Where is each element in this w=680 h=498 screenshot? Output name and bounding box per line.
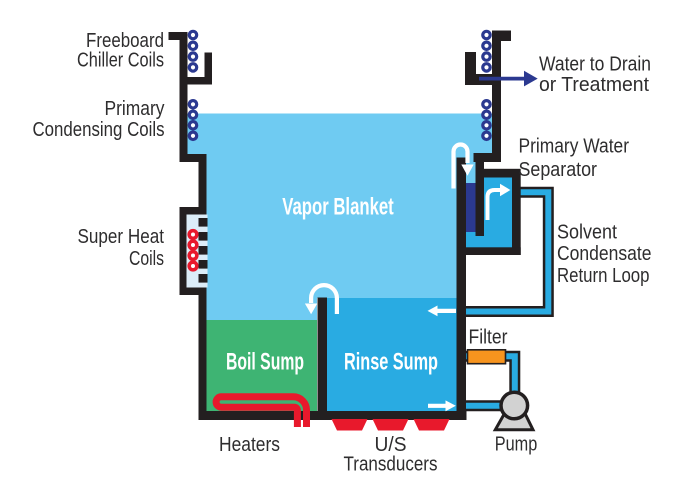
svg-text:Solvent: Solvent — [557, 222, 617, 244]
svg-text:Heaters: Heaters — [219, 434, 280, 456]
svg-text:Vapor Blanket: Vapor Blanket — [282, 193, 394, 220]
svg-text:or Treatment: or Treatment — [539, 74, 649, 96]
svg-text:Super Heat: Super Heat — [78, 226, 165, 248]
svg-text:Pump: Pump — [495, 434, 538, 456]
svg-text:Transducers: Transducers — [344, 454, 438, 476]
svg-text:Rinse Sump: Rinse Sump — [344, 349, 438, 376]
svg-text:Condensing Coils: Condensing Coils — [33, 119, 165, 141]
svg-text:Return Loop: Return Loop — [557, 265, 650, 287]
svg-text:Separator: Separator — [519, 159, 598, 181]
svg-text:Primary: Primary — [105, 98, 165, 120]
svg-text:Filter: Filter — [469, 327, 508, 349]
svg-text:Chiller Coils: Chiller Coils — [77, 50, 164, 72]
svg-text:Primary Water: Primary Water — [519, 135, 630, 157]
svg-text:Coils: Coils — [129, 248, 164, 270]
svg-text:Water to Drain: Water to Drain — [539, 54, 651, 76]
svg-text:Boil Sump: Boil Sump — [226, 349, 304, 376]
svg-text:Condensate: Condensate — [557, 243, 652, 265]
